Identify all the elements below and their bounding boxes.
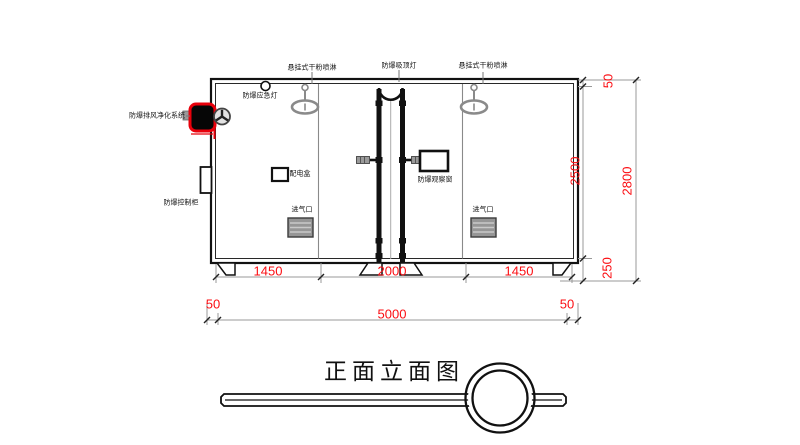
dim-1450-left: 1450 — [254, 265, 283, 278]
dim-2000-center: 2000 — [378, 265, 407, 278]
label-power-box: 配电盒 — [290, 171, 311, 178]
dim-50-bottom-left: 50 — [206, 298, 220, 311]
drawing-title: 正面立面图 — [324, 352, 464, 386]
emergency-light-icon — [261, 82, 270, 91]
air-inlet-right-icon — [471, 218, 496, 237]
dim-2500-inner: 2500 — [569, 157, 582, 186]
dim-5000-total: 5000 — [378, 308, 407, 321]
label-air-inlet-left: 进气口 — [292, 207, 313, 214]
dim-1450-right: 1450 — [505, 265, 534, 278]
dim-50-right-top: 50 — [602, 74, 615, 88]
dim-2800-total: 2800 — [621, 167, 634, 196]
label-observation-window: 防爆观察窗 — [418, 177, 453, 184]
elevation-drawing: 悬挂式干粉喷淋 防爆吸顶灯 悬挂式干粉喷淋 防爆应急灯 防爆排风净化系统 防爆控… — [0, 0, 800, 445]
label-purification-system: 防爆排风净化系统 — [129, 113, 185, 120]
control-cabinet-icon — [201, 167, 212, 193]
title-ring-inner — [473, 371, 528, 426]
air-inlet-left-icon — [288, 218, 313, 237]
container-outline — [211, 79, 578, 263]
label-air-inlet-right: 进气口 — [473, 207, 494, 214]
power-box-icon — [272, 168, 288, 181]
dim-50-bottom-right: 50 — [560, 298, 574, 311]
dim-250-base: 250 — [601, 257, 614, 279]
label-control-cabinet: 防爆控制柜 — [164, 200, 199, 207]
label-emergency-light: 防爆应急灯 — [243, 93, 278, 100]
observation-window-icon — [420, 151, 448, 171]
label-sprinkler-left: 悬挂式干粉喷淋 — [288, 65, 337, 72]
label-ceiling-lamp: 防爆吸顶灯 — [382, 63, 417, 70]
label-sprinkler-right: 悬挂式干粉喷淋 — [459, 63, 508, 70]
